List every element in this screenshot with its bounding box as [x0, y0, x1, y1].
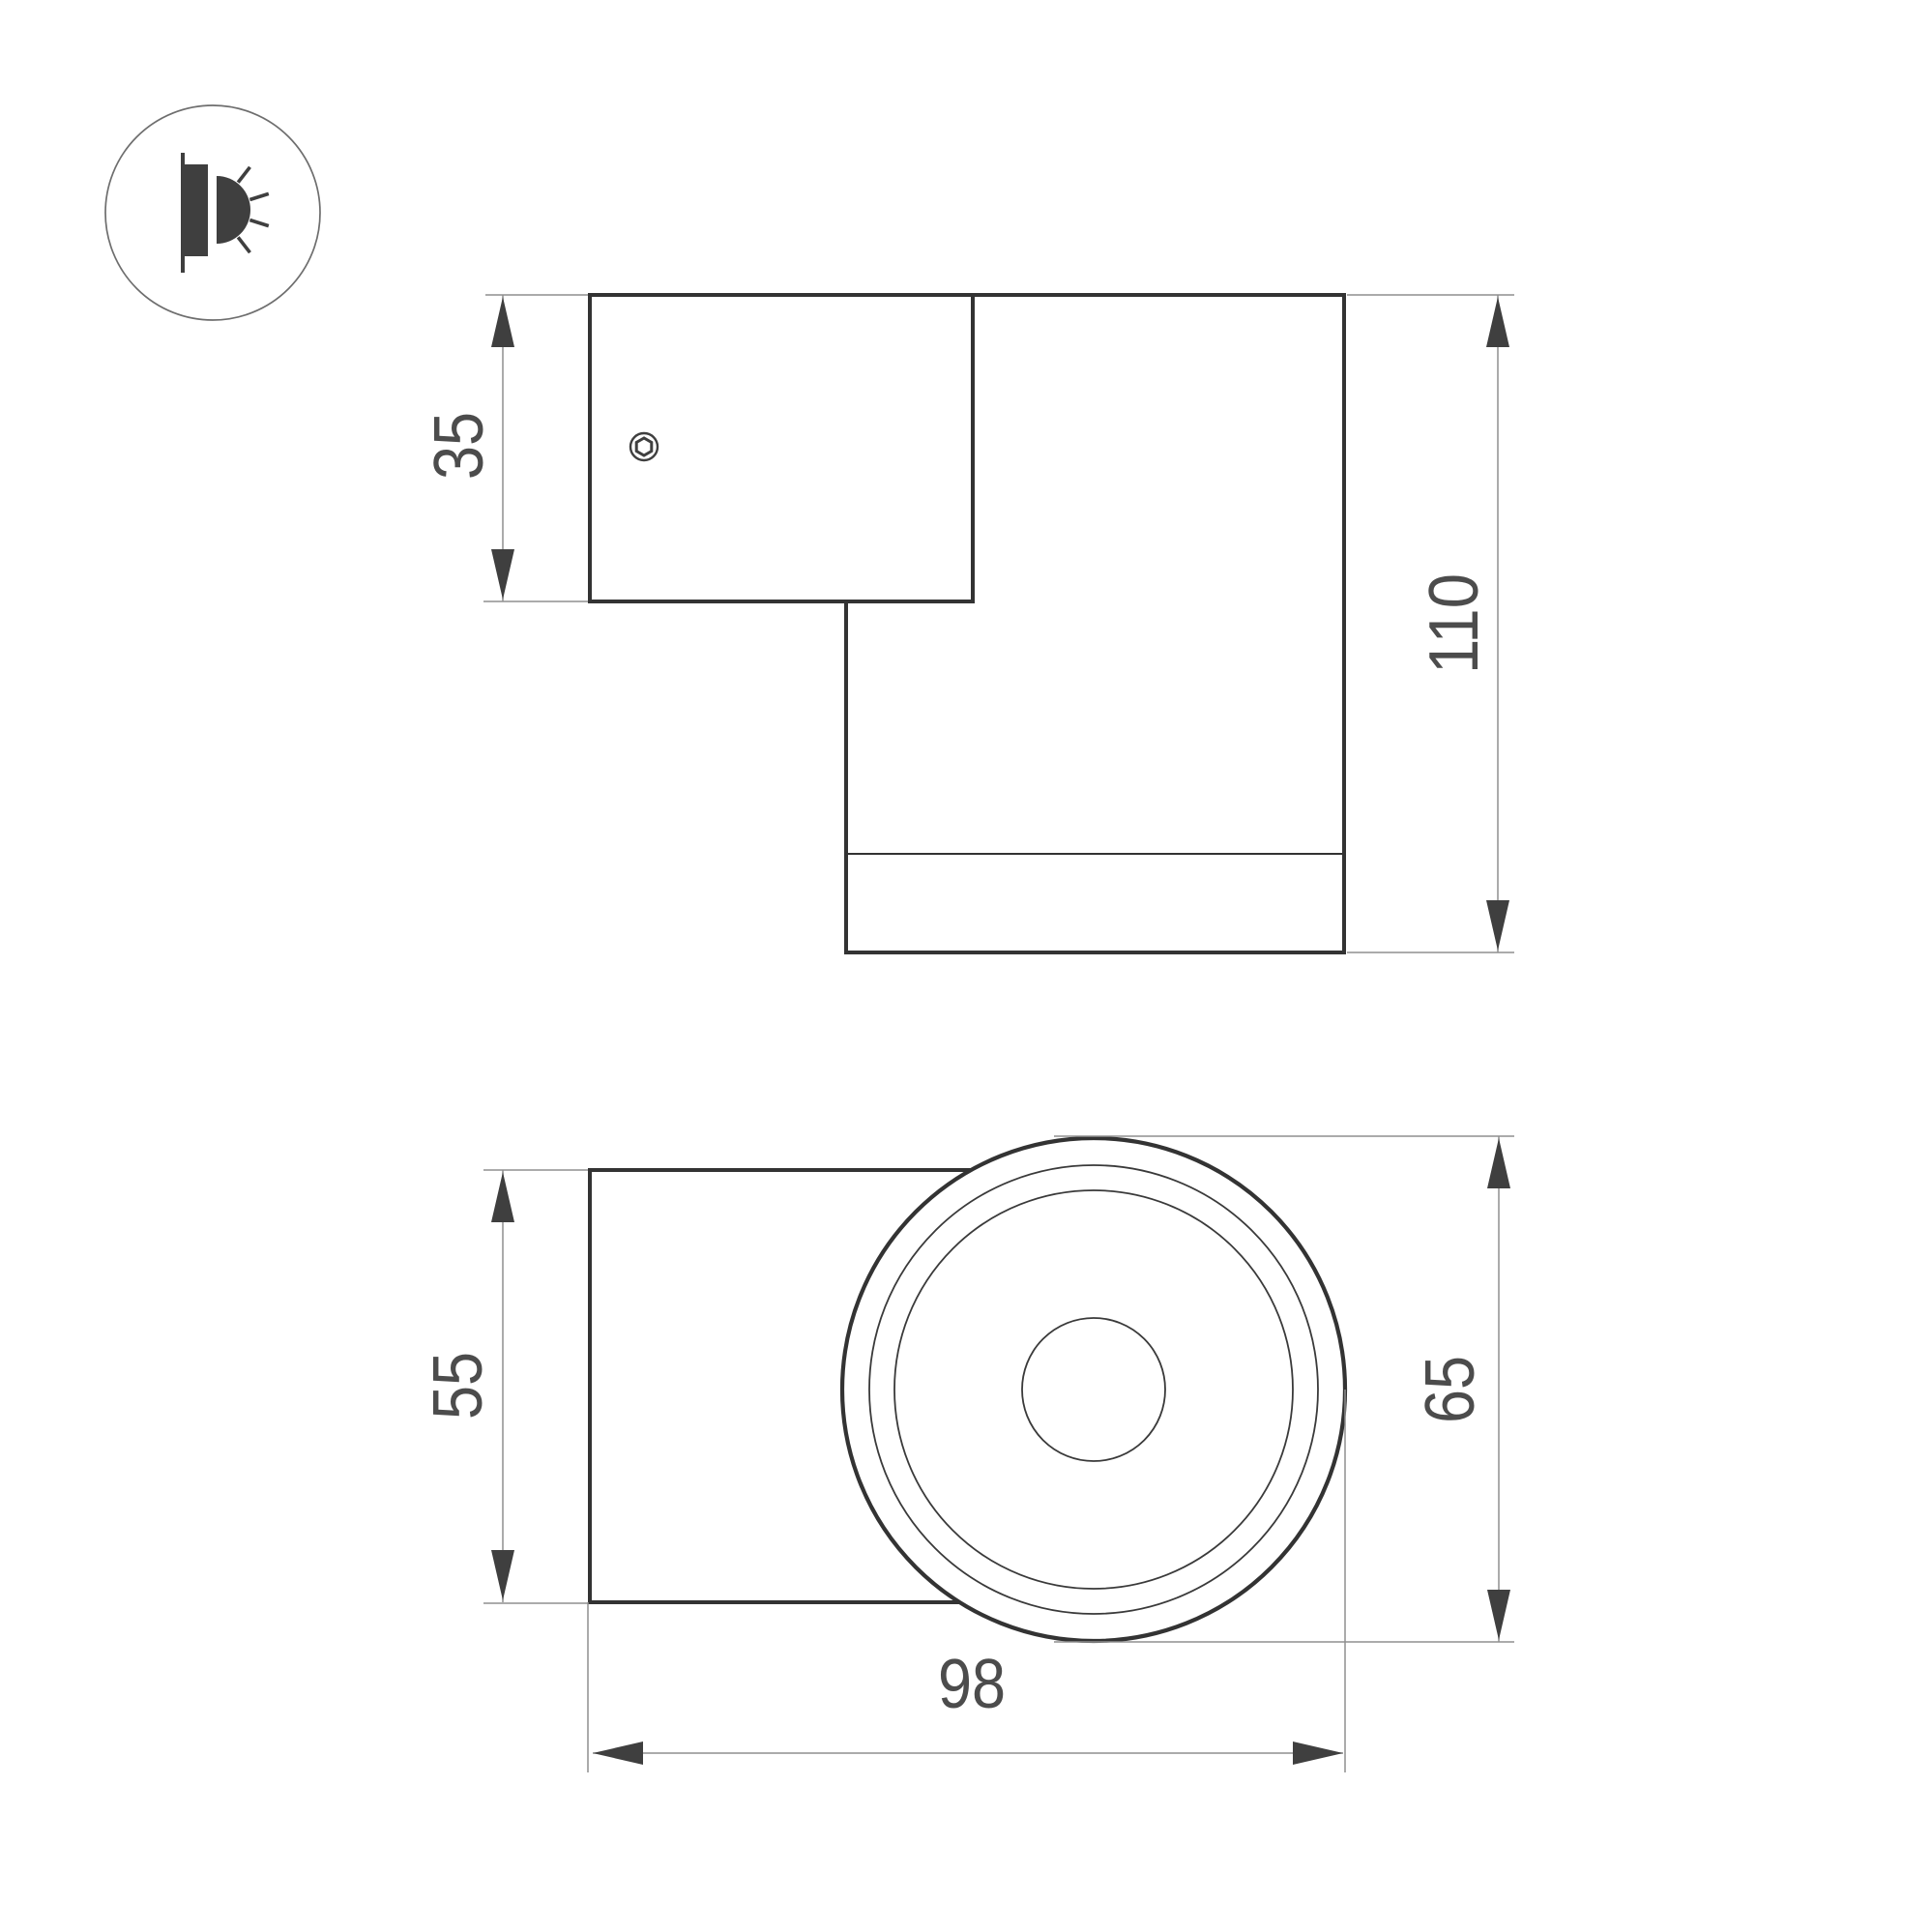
arrow-up-icon	[1486, 297, 1509, 347]
dim-label-overall-width: 98	[938, 1646, 1006, 1723]
dim-label-body-length: 110	[1416, 573, 1493, 674]
dim-plate-height: 35	[421, 295, 588, 601]
arrow-up-icon	[491, 1172, 514, 1222]
arrow-down-icon	[1487, 1590, 1510, 1640]
side-view: 35 110	[421, 293, 1514, 954]
dimension-drawing: 35 110	[0, 0, 1932, 1932]
arrow-left-icon	[593, 1742, 643, 1765]
dimension-drawing-sheet: 35 110	[0, 0, 1932, 1932]
screw-icon	[630, 433, 658, 460]
arrow-up-icon	[491, 297, 514, 347]
wall-light-icon	[105, 105, 320, 320]
arrow-right-icon	[1293, 1742, 1343, 1765]
icon-circle-badge	[105, 105, 320, 320]
arrow-up-icon	[1487, 1138, 1510, 1188]
dim-label-head-diameter: 65	[1412, 1356, 1489, 1423]
head-outer-circle	[842, 1138, 1345, 1641]
fixture-body-icon	[185, 164, 208, 256]
arrow-down-icon	[491, 549, 514, 600]
front-view: 55 65 98	[420, 1136, 1514, 1772]
dim-label-body-height: 55	[420, 1352, 497, 1420]
dim-body-height: 55	[420, 1170, 588, 1603]
dim-body-length: 110	[1347, 295, 1514, 952]
arrow-down-icon	[1486, 900, 1509, 951]
dim-label-plate-height: 35	[421, 412, 498, 480]
arrow-down-icon	[491, 1550, 514, 1600]
